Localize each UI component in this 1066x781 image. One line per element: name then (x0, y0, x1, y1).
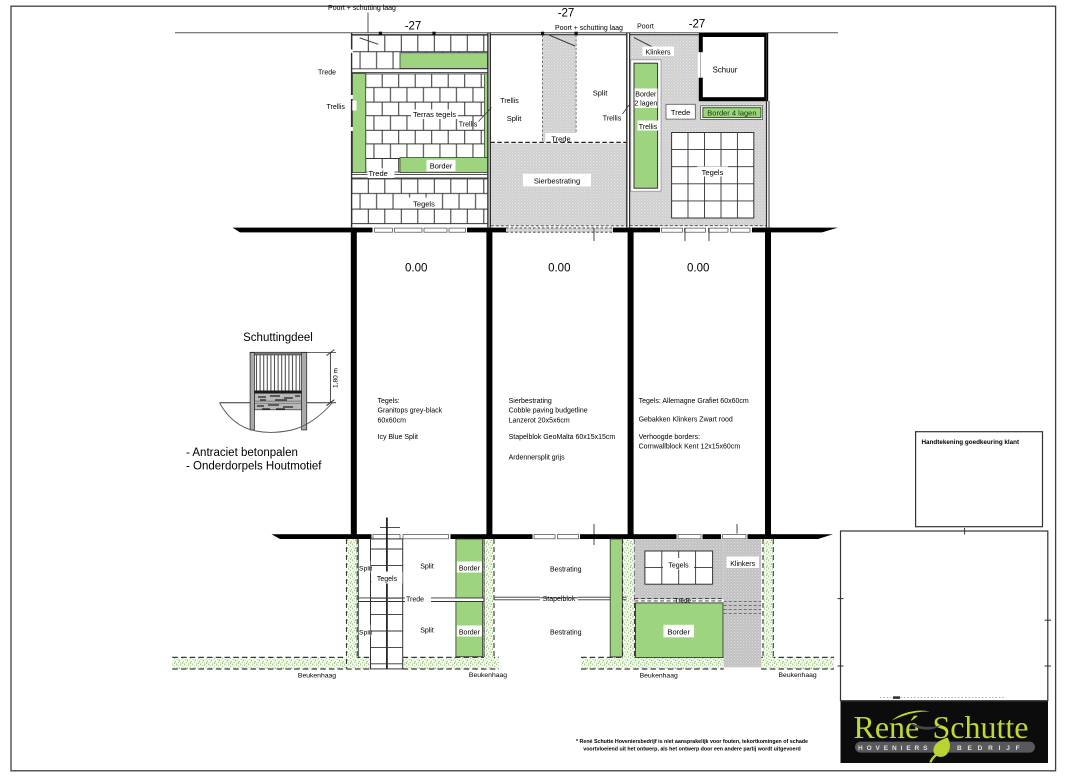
svg-text:0.00: 0.00 (405, 263, 427, 275)
svg-text:Stapelblok GeoMalta 60x15x15cm: Stapelblok GeoMalta 60x15x15cm (509, 434, 616, 441)
svg-text:voortvloeiend uit het ontwerp,: voortvloeiend uit het ontwerp, als het o… (583, 747, 801, 753)
svg-text:Schuur: Schuur (713, 66, 738, 75)
svg-text:Trellis: Trellis (500, 98, 519, 105)
svg-text:Split: Split (420, 628, 434, 635)
svg-text:Tegels: Tegels (668, 562, 689, 569)
svg-text:0.00: 0.00 (687, 263, 709, 275)
svg-text:Cobble paving budgetline: Cobble paving budgetline (509, 408, 588, 415)
svg-text:Sierbestrating: Sierbestrating (534, 177, 580, 186)
svg-text:Tegels: Tegels (413, 199, 435, 208)
svg-text:Trellis: Trellis (459, 122, 478, 129)
svg-text:2 lagen: 2 lagen (634, 101, 657, 108)
svg-text:-27: -27 (689, 19, 706, 31)
svg-text:60x60cm: 60x60cm (378, 417, 407, 424)
svg-text:Stapelblok: Stapelblok (543, 596, 576, 603)
svg-text:Split: Split (420, 564, 434, 571)
svg-text:Gebakken Klinkers Zwart rood: Gebakken Klinkers Zwart rood (639, 417, 733, 424)
svg-text:Icy Blue Split: Icy Blue Split (378, 434, 419, 441)
svg-text:Poort: Poort (637, 23, 654, 30)
svg-text:Tegels: Tegels (702, 168, 724, 177)
svg-text:Trellis: Trellis (603, 115, 622, 122)
svg-text:Trede: Trede (671, 108, 690, 117)
svg-text:Cornwallblock Kent 12x15x60cm: Cornwallblock Kent 12x15x60cm (639, 444, 741, 451)
svg-text:Schuttingdeel: Schuttingdeel (243, 332, 313, 344)
svg-text:Bestrating: Bestrating (550, 566, 582, 573)
svg-text:Border: Border (635, 92, 657, 99)
svg-text:* René Schutte Hoveniersbedrij: * René Schutte Hoveniersbedrijf is niet … (576, 739, 808, 745)
svg-text:BEDRIJF: BEDRIJF (957, 745, 1025, 752)
svg-text:Granitops grey-black: Granitops grey-black (378, 408, 443, 415)
svg-text:Trede: Trede (406, 596, 424, 603)
svg-text:Ardennersplit grijs: Ardennersplit grijs (509, 455, 566, 462)
svg-text:Trede: Trede (318, 69, 336, 76)
svg-text:- Onderdorpels Houtmotief: - Onderdorpels Houtmotief (186, 460, 322, 472)
svg-text:Terras tegels: Terras tegels (413, 110, 456, 119)
svg-text:Beukenhaag: Beukenhaag (298, 673, 336, 680)
svg-text:-27: -27 (558, 8, 575, 20)
svg-text:René: René (854, 709, 920, 745)
svg-text:0.00: 0.00 (548, 263, 570, 275)
svg-text:Beukenhaag: Beukenhaag (469, 672, 507, 679)
svg-text:Border: Border (459, 629, 481, 636)
svg-text:- Antraciet betonpalen: - Antraciet betonpalen (186, 447, 298, 459)
svg-text:Border: Border (459, 565, 481, 572)
svg-text:Split: Split (507, 114, 523, 123)
svg-text:Border: Border (430, 162, 453, 171)
svg-text:Poort + schutting laag: Poort + schutting laag (328, 5, 396, 12)
svg-text:Bestrating: Bestrating (550, 629, 582, 636)
svg-text:HOVENIERS: HOVENIERS (858, 745, 931, 752)
svg-text:Lanzerot 20x5x6cm: Lanzerot 20x5x6cm (509, 417, 570, 424)
svg-text:Handtekening goedkeuring klant: Handtekening goedkeuring klant (922, 439, 1021, 446)
svg-text:Sierbestrating: Sierbestrating (509, 398, 552, 405)
svg-text:Beukenhaag: Beukenhaag (779, 672, 817, 679)
svg-text:Trellis: Trellis (327, 104, 346, 111)
svg-text:Split: Split (359, 566, 372, 573)
svg-text:Verhoogde borders:: Verhoogde borders: (639, 434, 701, 441)
svg-text:Poort + schutting laag: Poort + schutting laag (555, 25, 623, 32)
svg-text:Split: Split (359, 630, 372, 637)
svg-text:Trede: Trede (369, 169, 388, 178)
svg-text:Border 4 lagen: Border 4 lagen (707, 109, 756, 118)
svg-text:1,80 m: 1,80 m (333, 368, 340, 388)
svg-text:Border: Border (667, 628, 690, 637)
svg-text:Split: Split (593, 89, 609, 98)
svg-text:Beukenhaag: Beukenhaag (640, 673, 678, 680)
svg-text:Tegels: Allemagne Grafiet 60x6: Tegels: Allemagne Grafiet 60x60cm (639, 398, 749, 405)
svg-text:Tegels: Tegels (377, 576, 398, 583)
svg-text:Tegels:: Tegels: (378, 398, 400, 405)
svg-text:Trellis: Trellis (639, 124, 658, 131)
svg-text:Klinkers: Klinkers (730, 561, 755, 568)
svg-text:Klinkers: Klinkers (646, 49, 671, 56)
svg-text:-27: -27 (405, 21, 422, 33)
